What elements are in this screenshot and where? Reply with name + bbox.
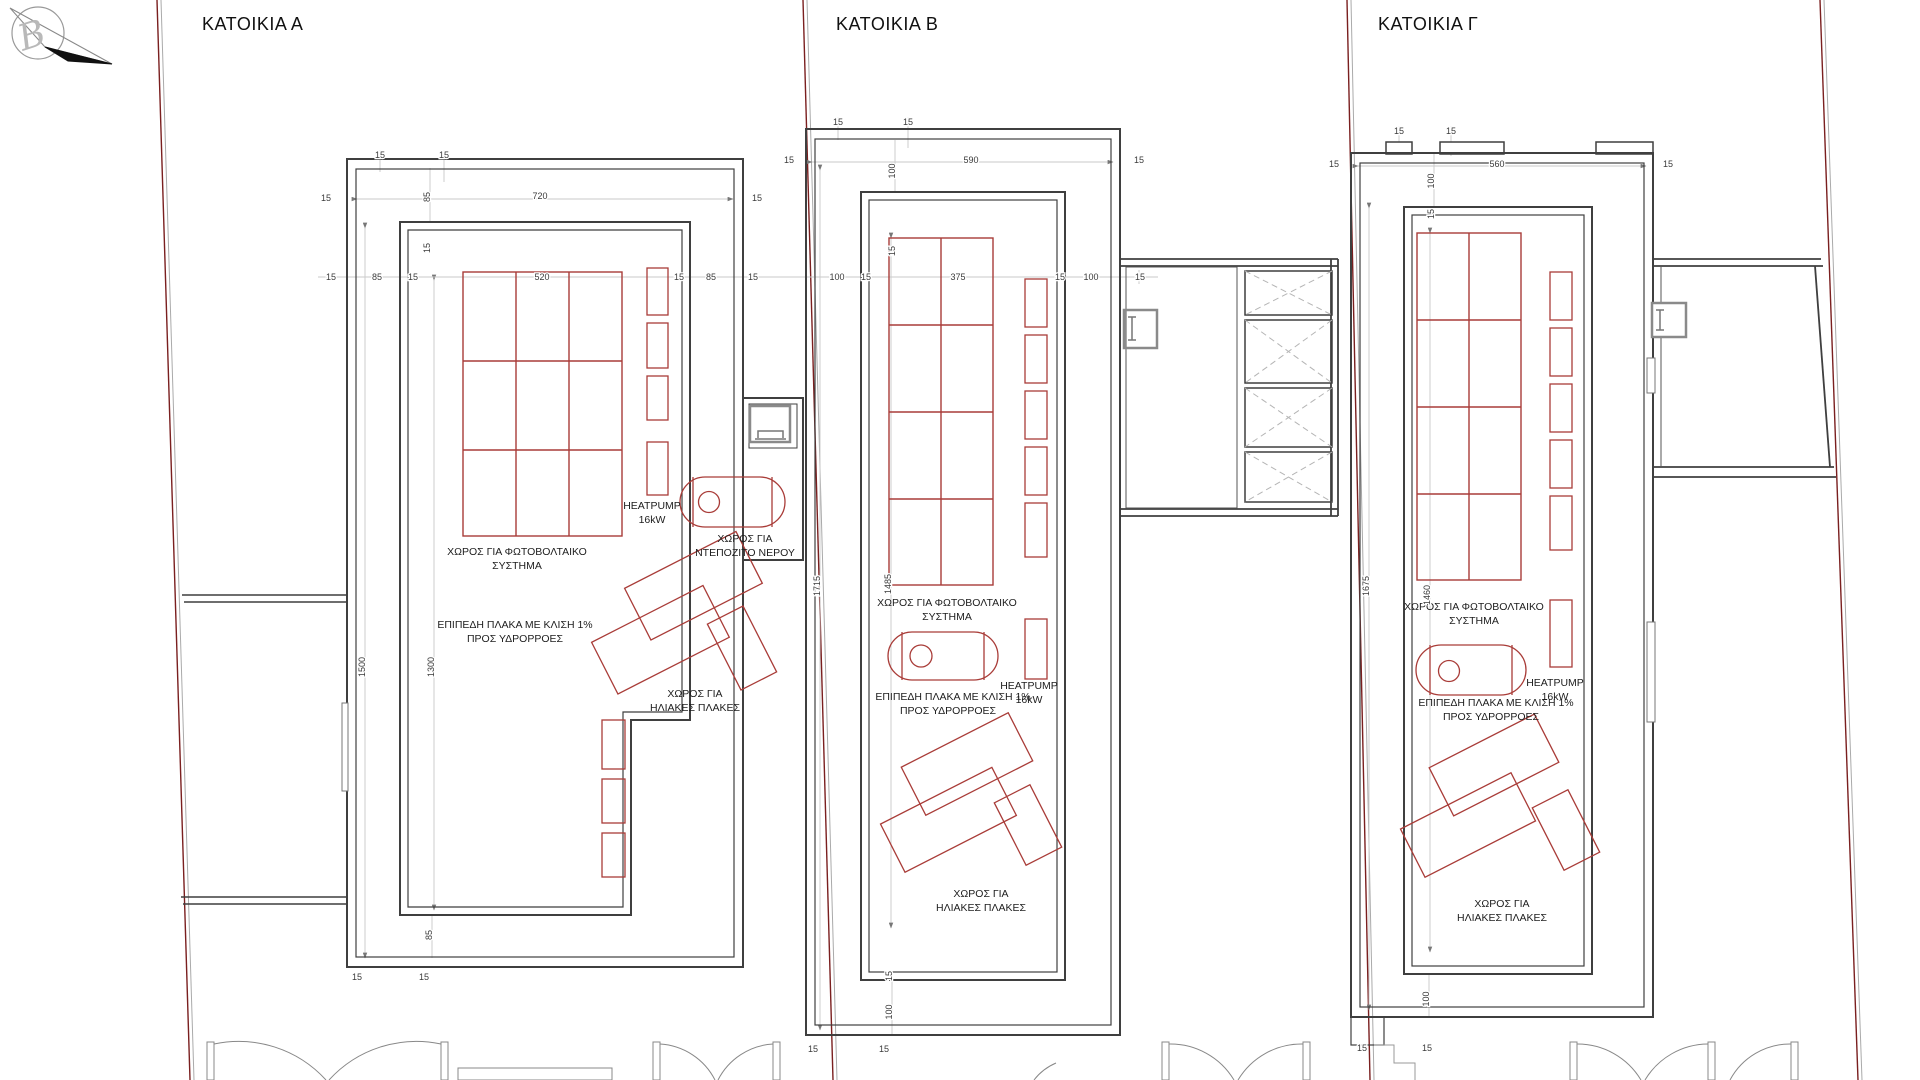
dim-label: 15 (375, 150, 385, 160)
solar-collectors-b (880, 713, 1061, 873)
dim-label: 520 (534, 272, 549, 282)
dim-label: 100 (1421, 991, 1431, 1006)
slab-label-g: ΕΠΙΠΕΔΗ ΠΛΑΚΑ ΜΕ ΚΛΙΣΗ 1% (1418, 697, 1573, 709)
dim-label: 15 (1357, 1043, 1367, 1053)
dim-label: 15 (887, 246, 897, 256)
pv-panel-grid-a (463, 272, 622, 536)
dim-label: 1500 (357, 657, 367, 677)
dim-label: 15 (1663, 159, 1673, 169)
door-opening-a (342, 703, 348, 791)
svg-text:ΠΡΟΣ ΥΔΡΟΡΡΟΕΣ: ΠΡΟΣ ΥΔΡΟΡΡΟΕΣ (467, 633, 564, 645)
skylight-structure (1120, 259, 1338, 516)
dim-label: 15 (1135, 272, 1145, 282)
dim-label: 15 (808, 1044, 818, 1054)
dim-label: 15 (422, 243, 432, 253)
dim-label: 15 (1446, 126, 1456, 136)
title-house-g: ΚΑΤΟΙΚΙΑ Γ (1378, 14, 1478, 34)
dim-label: 100 (887, 163, 897, 178)
dim-label: 1300 (426, 657, 436, 677)
svg-text:ΗΛΙΑΚΕΣ ΠΛΑΚΕΣ: ΗΛΙΑΚΕΣ ΠΛΑΚΕΣ (650, 702, 741, 714)
dim-label: 15 (879, 1044, 889, 1054)
svg-text:ΠΡΟΣ ΥΔΡΟΡΡΟΕΣ: ΠΡΟΣ ΥΔΡΟΡΡΟΕΣ (900, 705, 997, 717)
svg-text:ΠΡΟΣ ΥΔΡΟΡΡΟΕΣ: ΠΡΟΣ ΥΔΡΟΡΡΟΕΣ (1443, 711, 1540, 723)
dim-label: 15 (408, 272, 418, 282)
dim-label: 85 (706, 272, 716, 282)
dim-label: 15 (419, 972, 429, 982)
floor-plan-canvas: B (0, 0, 1920, 1080)
dim-label: 15 (326, 272, 336, 282)
pv-area-label-b: ΧΩΡΟΣ ΓΙΑ ΦΩΤΟΒΟΛΤΑΙΚΟ (877, 597, 1017, 609)
dim-label: 15 (352, 972, 362, 982)
east-annex (1652, 259, 1836, 477)
dim-label: 100 (1426, 173, 1436, 188)
house-g: ΧΩΡΟΣ ΓΙΑ ΦΩΤΟΒΟΛΤΑΙΚΟ ΣΥΣΤΗΜΑ HEATPUMP … (1351, 142, 1655, 1045)
dim-label: 1460 (1422, 585, 1432, 605)
heatpump-units-b (1025, 279, 1047, 679)
dim-label: 15 (861, 272, 871, 282)
title-house-b: ΚΑΤΟΙΚΙΑ Β (836, 14, 938, 34)
wall-opening-g1 (1647, 358, 1655, 393)
dim-label: 375 (950, 272, 965, 282)
svg-text:ΗΛΙΑΚΕΣ ΠΛΑΚΕΣ: ΗΛΙΑΚΕΣ ΠΛΑΚΕΣ (1457, 912, 1548, 924)
dim-label: 1715 (812, 576, 822, 596)
dim-label: 15 (439, 150, 449, 160)
title-house-a: ΚΑΤΟΙΚΙΑ Α (202, 14, 303, 34)
chimney-a-icon (750, 406, 790, 442)
water-tank-g (1416, 645, 1526, 695)
tank-label-a: ΧΩΡΟΣ ΓΙΑ (717, 533, 772, 545)
dim-label: 100 (829, 272, 844, 282)
svg-text:ΣΥΣΤΗΜΑ: ΣΥΣΤΗΜΑ (492, 560, 542, 572)
dim-label: 100 (884, 1004, 894, 1019)
dim-label: 15 (321, 193, 331, 203)
floor-plan-page: B (0, 0, 1920, 1080)
dim-label: 15 (752, 193, 762, 203)
dim-label: 15 (1055, 272, 1065, 282)
dim-label: 85 (424, 930, 434, 940)
heatpump-label-a: HEATPUMP (623, 500, 681, 512)
dim-label: 15 (1422, 1043, 1432, 1053)
heatpump-label-g: HEATPUMP (1526, 677, 1584, 689)
dim-label: 590 (963, 155, 978, 165)
chimney-b-icon (1124, 310, 1157, 348)
dim-label: 15 (1426, 209, 1436, 219)
dim-label: 85 (422, 192, 432, 202)
vent-units-a (602, 720, 625, 877)
terrace-a-west (181, 595, 347, 904)
skylight-frames (1245, 271, 1332, 502)
dim-label: 85 (372, 272, 382, 282)
dim-label: 15 (748, 272, 758, 282)
dim-label: 15 (674, 272, 684, 282)
water-tank-b (888, 632, 998, 680)
pv-panel-grid-g (1417, 233, 1521, 580)
dim-label: 15 (1329, 159, 1339, 169)
heatpump-units-a (647, 268, 668, 495)
dim-label: 720 (532, 191, 547, 201)
heatpump-units-g (1550, 272, 1572, 667)
skylight-x-hatch (1245, 271, 1332, 502)
pv-panel-grid-b (889, 238, 993, 585)
dim-label: 15 (784, 155, 794, 165)
bottom-window (458, 1068, 612, 1080)
house-b: ΧΩΡΟΣ ΓΙΑ ΦΩΤΟΒΟΛΤΑΙΚΟ ΣΥΣΤΗΜΑ HEATPUMP … (806, 129, 1120, 1035)
dim-label: 15 (884, 971, 894, 981)
svg-text:ΣΥΣΤΗΜΑ: ΣΥΣΤΗΜΑ (922, 611, 972, 623)
north-letter: B (12, 12, 51, 59)
chimney-g-icon (1652, 303, 1686, 337)
dim-label: 15 (1394, 126, 1404, 136)
dim-label: 560 (1489, 159, 1504, 169)
solar-label-g: ΧΩΡΟΣ ΓΙΑ (1474, 898, 1529, 910)
dim-label: 1675 (1361, 576, 1371, 596)
svg-text:ΗΛΙΑΚΕΣ ΠΛΑΚΕΣ: ΗΛΙΑΚΕΣ ΠΛΑΚΕΣ (936, 902, 1027, 914)
slab-label-b: ΕΠΙΠΕΔΗ ΠΛΑΚΑ ΜΕ ΚΛΙΣΗ 1% (875, 691, 1030, 703)
wall-opening-g2 (1647, 622, 1655, 722)
svg-text:16kW: 16kW (639, 514, 666, 526)
dim-label: 100 (1083, 272, 1098, 282)
svg-text:ΝΤΕΠΟΖΙΤΟ ΝΕΡΟΥ: ΝΤΕΠΟΖΙΤΟ ΝΕΡΟΥ (695, 547, 795, 559)
north-arrow: B (10, 7, 112, 64)
slab-label-a: ΕΠΙΠΕΔΗ ΠΛΑΚΑ ΜΕ ΚΛΙΣΗ 1% (437, 619, 592, 631)
dim-label: 15 (1134, 155, 1144, 165)
pv-area-label-a: ΧΩΡΟΣ ΓΙΑ ΦΩΤΟΒΟΛΤΑΙΚΟ (447, 546, 587, 558)
water-tank-a (680, 477, 785, 527)
bottom-door-swings (207, 1041, 1798, 1080)
solar-label-b: ΧΩΡΟΣ ΓΙΑ (953, 888, 1008, 900)
dim-label: 15 (903, 117, 913, 127)
svg-text:ΣΥΣΤΗΜΑ: ΣΥΣΤΗΜΑ (1449, 615, 1499, 627)
dim-label: 15 (833, 117, 843, 127)
dim-label: 1485 (883, 574, 893, 594)
solar-label-a: ΧΩΡΟΣ ΓΙΑ (667, 688, 722, 700)
